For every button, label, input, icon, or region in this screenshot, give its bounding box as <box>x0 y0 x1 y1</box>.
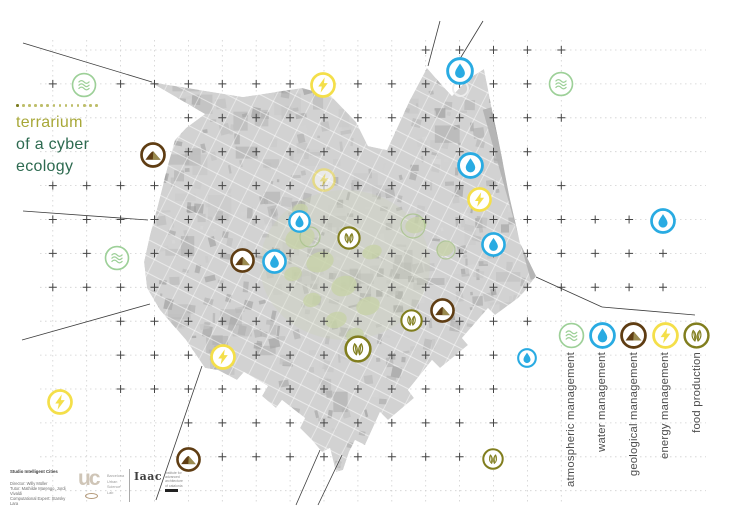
uc-logo: uc <box>78 469 104 505</box>
iaac-logo-text: Iaac <box>134 471 162 492</box>
marker-water-icon <box>517 348 537 373</box>
legend-geological-icon <box>620 322 647 354</box>
marker-food-icon <box>344 335 372 368</box>
iaac-subline: of catalonia <box>165 484 185 488</box>
marker-water-icon <box>446 57 474 90</box>
legend-label-atmospheric: atmospheric management <box>565 352 578 487</box>
rule-dot <box>34 104 37 107</box>
legend-label-energy: energy management <box>659 352 672 459</box>
rule-dot <box>16 104 19 107</box>
marker-energy-icon <box>210 344 236 375</box>
uc-logo-text: uc <box>78 469 104 489</box>
rule-dot <box>83 104 86 107</box>
legend-label-geological: geological management <box>628 352 641 476</box>
rule-dot <box>46 104 49 107</box>
footer-credits: Studio Intelligent Cities Director: Will… <box>10 469 185 506</box>
marker-atmospheric-icon <box>71 72 97 103</box>
rule-dot <box>71 104 74 107</box>
marker-geological-icon <box>140 142 166 173</box>
credits-studio: Studio Intelligent Cities <box>10 469 74 474</box>
iaac-logo: Iaac institute foradvancedarchitectureof… <box>134 469 185 492</box>
uc-subline: Barcelona <box>107 474 125 480</box>
iaac-subline: architecture <box>165 479 185 483</box>
iaac-logo-sublines: institute foradvancedarchitectureof cata… <box>165 471 185 492</box>
marker-water-icon <box>481 232 506 262</box>
marker-energy-icon <box>310 72 336 103</box>
rule-dot <box>89 104 92 107</box>
legend-food-icon <box>683 322 710 354</box>
marker-water-icon <box>650 208 676 239</box>
marker-atmospheric-icon <box>104 245 130 276</box>
legend-energy-icon <box>652 322 679 354</box>
studio-credits: Studio Intelligent Cities Director: Will… <box>10 469 74 506</box>
marker-water-icon <box>288 210 311 238</box>
uc-subline: Lab <box>107 491 125 497</box>
rule-dot <box>53 104 56 107</box>
rule-dot <box>28 104 31 107</box>
rule-dot <box>59 104 62 107</box>
poster-title-accent: terrarium <box>16 112 98 134</box>
credits-tutor: Tutor: Mathilde Marengo, Jordi Vivaldi <box>10 486 74 496</box>
legend-atmospheric-icon <box>558 322 585 354</box>
dotted-rule <box>16 104 98 107</box>
marker-food-icon <box>482 448 504 475</box>
marker-energy-icon <box>312 168 336 197</box>
marker-atmospheric-icon <box>548 71 574 102</box>
poster-canvas: terrarium of a cyber ecology atmospheric… <box>0 0 730 516</box>
marker-water-icon <box>262 249 287 279</box>
rule-dot <box>22 104 25 107</box>
title-block: terrarium of a cyber ecology <box>16 104 98 178</box>
iaac-logo-bar <box>165 489 178 492</box>
legend-label-food: food production <box>691 352 704 433</box>
uc-logo-sublines: BarcelonaUrbanScienceLab <box>107 469 125 496</box>
rule-dot <box>95 104 98 107</box>
marker-geological-icon <box>230 248 255 278</box>
footer-divider <box>129 469 130 502</box>
credits-expert: Computational Expert: Starsky Lara <box>10 496 74 506</box>
marker-water-icon <box>457 152 484 184</box>
marker-food-icon <box>400 309 423 337</box>
legend-water-icon <box>589 322 616 354</box>
poster-title-line3: ecology <box>16 156 98 178</box>
rule-dot <box>77 104 80 107</box>
rule-dot <box>65 104 68 107</box>
marker-energy-icon <box>47 389 73 420</box>
uc-logo-swirl <box>85 493 98 499</box>
marker-geological-icon <box>430 298 455 328</box>
marker-energy-icon <box>467 187 492 217</box>
marker-food-icon <box>337 226 361 255</box>
legend-label-water: water management <box>596 352 609 452</box>
rule-dot <box>40 104 43 107</box>
poster-title-line2: of a cyber <box>16 134 98 156</box>
